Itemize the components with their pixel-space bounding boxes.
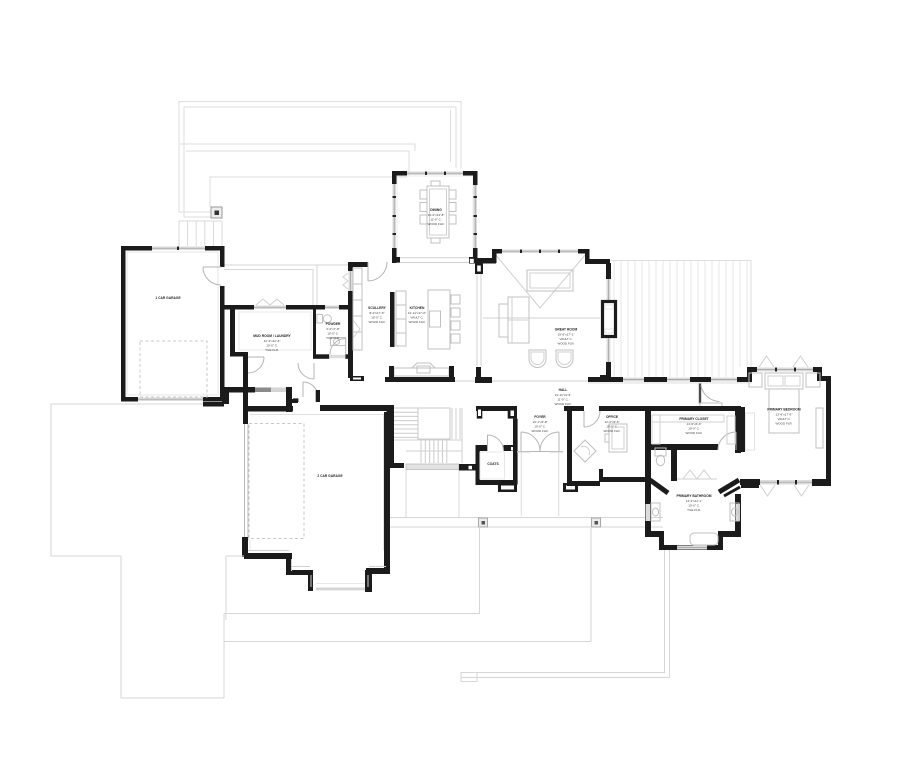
svg-text:10'-0" C.: 10'-0" C. [534, 424, 546, 428]
svg-text:WOOD FLR.: WOOD FLR. [558, 341, 575, 345]
svg-text:POWDER: POWDER [326, 322, 341, 326]
svg-text:VAULT C.: VAULT C. [777, 417, 790, 421]
svg-text:WOOD FLR.: WOOD FLR. [532, 429, 549, 433]
svg-text:VAULT C.: VAULT C. [410, 315, 423, 319]
svg-text:WOOD FLR.: WOOD FLR. [604, 429, 621, 433]
svg-text:10'-0" C.: 10'-0" C. [371, 315, 383, 319]
svg-text:10'-0" C.: 10'-0" C. [266, 343, 278, 347]
svg-text:10'-0" C.: 10'-0" C. [688, 426, 700, 430]
svg-text:13'-2"x13'-8": 13'-2"x13'-8" [428, 213, 445, 217]
svg-text:GREAT ROOM: GREAT ROOM [555, 328, 578, 332]
svg-text:10'-0" C.: 10'-0" C. [327, 331, 339, 335]
svg-text:21'-11"x4'-9": 21'-11"x4'-9" [555, 393, 572, 397]
svg-text:11'-0" C.: 11'-0" C. [430, 217, 441, 221]
svg-text:14'-9"x6'-6": 14'-9"x6'-6" [686, 422, 701, 426]
svg-text:PRIMARY BEDROOM: PRIMARY BEDROOM [767, 408, 800, 412]
svg-text:1 CAR GARAGE: 1 CAR GARAGE [155, 296, 181, 300]
svg-text:13'-1"x6'-8": 13'-1"x6'-8" [532, 420, 547, 424]
svg-text:14'-3"x11'-1": 14'-3"x11'-1" [686, 499, 703, 503]
svg-text:SCULLERY: SCULLERY [368, 306, 386, 310]
svg-text:DINING: DINING [430, 208, 442, 212]
svg-text:12'-11"x17'-6": 12'-11"x17'-6" [408, 311, 426, 315]
svg-text:12'-2"x9'-6": 12'-2"x9'-6" [604, 420, 619, 424]
svg-text:3'-2"x7'-8": 3'-2"x7'-8" [326, 327, 339, 331]
svg-text:MUD ROOM / LAUNDRY: MUD ROOM / LAUNDRY [253, 334, 291, 338]
svg-text:WOOD FLR.: WOOD FLR. [369, 320, 386, 324]
svg-text:WOOD FLR.: WOOD FLR. [409, 320, 426, 324]
svg-text:13'-6"x17'-6": 13'-6"x17'-6" [776, 412, 793, 416]
svg-text:PRIMARY CLOSET: PRIMARY CLOSET [679, 417, 708, 421]
svg-text:WOOD FLR.: WOOD FLR. [555, 402, 572, 406]
svg-text:TILE FLR.: TILE FLR. [687, 508, 701, 512]
svg-text:PRIMARY BATHROOM: PRIMARY BATHROOM [676, 494, 711, 498]
svg-text:OFFICE: OFFICE [606, 415, 619, 419]
svg-text:TILE FLR.: TILE FLR. [265, 348, 279, 352]
svg-text:WOOD FLR.: WOOD FLR. [686, 431, 703, 435]
svg-text:19'-6"x17'-1": 19'-6"x17'-1" [558, 332, 575, 336]
svg-text:KITCHEN: KITCHEN [410, 306, 425, 310]
svg-text:WOOD FLR.: WOOD FLR. [776, 421, 793, 425]
svg-text:WOOD FLR.: WOOD FLR. [428, 222, 445, 226]
svg-text:TILE FLR.: TILE FLR. [326, 336, 340, 340]
svg-text:10'-0" C.: 10'-0" C. [688, 503, 700, 507]
svg-text:12'-3"x12'-6": 12'-3"x12'-6" [264, 339, 281, 343]
svg-text:COATS: COATS [487, 462, 499, 466]
svg-text:VAULT C.: VAULT C. [559, 337, 572, 341]
svg-text:FOYER: FOYER [534, 415, 546, 419]
svg-text:HALL: HALL [559, 388, 568, 392]
svg-text:2 CAR GARAGE: 2 CAR GARAGE [317, 474, 343, 478]
svg-text:11'-0" C.: 11'-0" C. [557, 397, 568, 401]
svg-text:10'-0" C.: 10'-0" C. [606, 424, 618, 428]
svg-text:8'-2"x17'-6": 8'-2"x17'-6" [369, 311, 384, 315]
